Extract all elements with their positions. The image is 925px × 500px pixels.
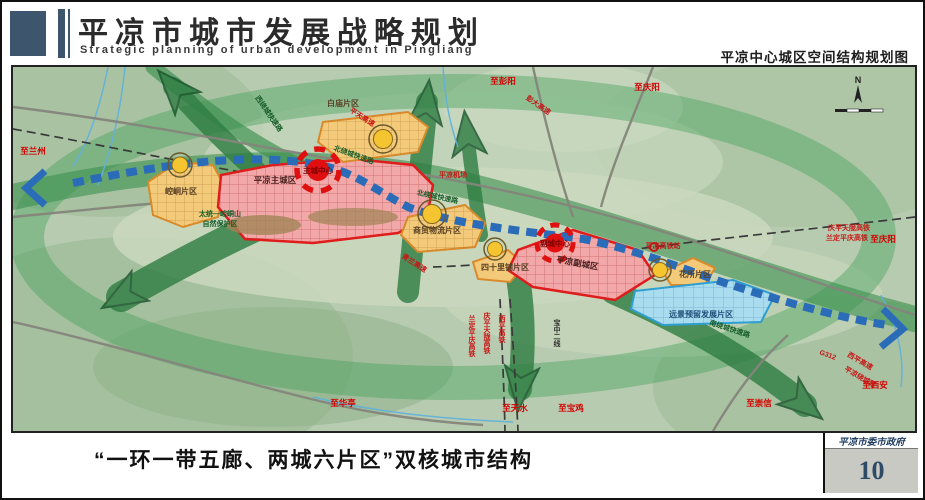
label-zone-logistics: 商贸物流片区 bbox=[413, 225, 461, 235]
label-hsr-line-2: 兰定平庆高铁 bbox=[826, 233, 868, 242]
agency-page-box: 平凉市委市政府 10 bbox=[823, 433, 918, 493]
scale-bar-icon bbox=[835, 109, 883, 112]
label-hsr-line-1: 庆平天陇高铁 bbox=[827, 223, 870, 232]
label-to-chongxin: 至崇信 bbox=[746, 398, 772, 408]
label-zone-main-city: 平凉主城区 bbox=[254, 175, 297, 185]
label-hsr-station: 平凉高铁站 bbox=[646, 241, 681, 250]
logo-block bbox=[10, 11, 46, 56]
map-canvas: N 至兰州 至彭阳 至庆阳 至庆阳 至西安 至崇信 至天水 至宝鸡 至 bbox=[13, 67, 915, 431]
label-to-pengyang: 至彭阳 bbox=[490, 76, 516, 86]
figure-caption: “一环一带五廊、两城六片区”双核城市结构 bbox=[94, 444, 533, 474]
label-to-qingyang-top: 至庆阳 bbox=[634, 82, 660, 92]
svg-text:N: N bbox=[855, 75, 862, 85]
label-to-lanzhou: 至兰州 bbox=[20, 146, 46, 156]
label-nature-reserve-1: 太统—崆峒山 bbox=[199, 209, 241, 218]
label-nature-reserve-2: 自然保护区 bbox=[203, 219, 238, 228]
label-to-baoji: 至宝鸡 bbox=[558, 403, 584, 413]
label-main-center: 主城中心 bbox=[303, 165, 333, 175]
label-zone-huasuo: 花所片区 bbox=[679, 269, 711, 279]
label-to-huating: 至华亭 bbox=[330, 398, 356, 408]
planning-document-page: 平凉市城市发展战略规划 Strategic planning of urban … bbox=[0, 0, 925, 500]
label-sub-center: 副城中心 bbox=[540, 238, 570, 248]
logo-bar bbox=[58, 9, 65, 58]
label-zone-kongtong: 崆峒片区 bbox=[165, 186, 197, 196]
label-rail-baozhong: 宝中二线 bbox=[553, 319, 560, 347]
logo-bar-thin bbox=[68, 9, 70, 58]
label-to-qingyang-right: 至庆阳 bbox=[870, 234, 896, 244]
page-number: 10 bbox=[825, 449, 918, 493]
label-to-tianshui: 至天水 bbox=[502, 403, 528, 413]
label-zone-sishilipu: 四十里铺片区 bbox=[481, 262, 529, 272]
label-rail-qingping-tianlong: 庆平天陇高铁 bbox=[483, 312, 490, 354]
label-zone-reserved: 远景预留发展片区 bbox=[669, 309, 733, 319]
label-zone-baimiao: 白庙片区 bbox=[327, 98, 359, 108]
label-airport: 平凉机场 bbox=[439, 170, 467, 179]
page-subtitle-english: Strategic planning of urban development … bbox=[80, 44, 474, 56]
label-rail-landing-pingqing: 兰定平庆高铁 bbox=[468, 315, 475, 357]
label-rail-xiping-hsr: 西平高铁 bbox=[498, 315, 505, 343]
map-title: 平凉中心城区空间结构规划图 bbox=[721, 46, 910, 66]
agency-name: 平凉市委市政府 bbox=[825, 433, 918, 449]
planning-map: N 至兰州 至彭阳 至庆阳 至庆阳 至西安 至崇信 至天水 至宝鸡 至 bbox=[11, 65, 917, 433]
